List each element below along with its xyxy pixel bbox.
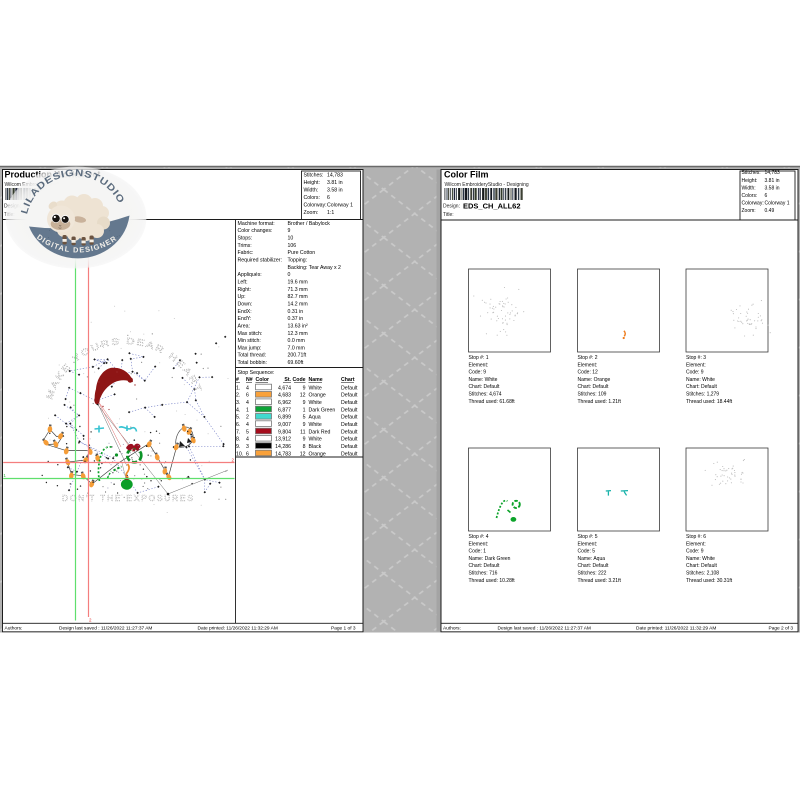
svg-text:Stitches: 222: Stitches: 222 [578,571,607,577]
svg-text:12: 12 [300,393,306,399]
svg-text:7.0 mm: 7.0 mm [288,345,305,351]
svg-text:Zoom:: Zoom: [742,208,756,214]
svg-text:Thread used: 61.68ft: Thread used: 61.68ft [469,399,516,405]
svg-text:Name: White: Name: White [686,556,715,562]
svg-text:EndY:: EndY: [238,316,252,322]
svg-text:Default: Default [341,429,358,435]
svg-text:Zoom:: Zoom: [304,210,319,216]
svg-text:Default: Default [341,400,358,406]
svg-text:Chart: Default: Chart: Default [578,563,609,569]
svg-text:3.58 in: 3.58 in [765,185,780,191]
svg-text:Code: 9: Code: 9 [469,370,487,376]
svg-text:Black: Black [309,444,322,450]
svg-text:Default: Default [341,437,358,443]
svg-text:Pure Cotton: Pure Cotton [288,250,316,256]
svg-text:Stitches: 109: Stitches: 109 [578,392,607,398]
svg-text:Thread used: 1.21ft: Thread used: 1.21ft [578,399,622,405]
svg-text:71.3 mm: 71.3 mm [288,287,308,293]
svg-text:3.: 3. [236,400,240,406]
svg-text:Topping:: Topping: [288,257,308,263]
svg-text:4: 4 [246,400,249,406]
svg-text:Wilcom EmbroideryStudio - Desi: Wilcom EmbroideryStudio - Designing [445,182,529,188]
svg-text:Brother / Babylock: Brother / Babylock [288,221,331,227]
svg-text:Down:: Down: [238,301,253,307]
svg-text:6,877: 6,877 [278,407,291,413]
svg-text:Area:: Area: [238,323,250,329]
svg-text:EndX:: EndX: [238,309,252,315]
svg-text:5.: 5. [236,415,240,421]
svg-text:6,962: 6,962 [278,400,291,406]
svg-text:Element:: Element: [686,362,706,368]
svg-text:Right:: Right: [238,287,252,293]
svg-text:Design last saved : 11/26/202: Design last saved : 11/26/2022 11:27:37 … [59,625,152,631]
svg-text:Dark Green: Dark Green [309,407,336,413]
svg-text:Design last saved : 11/26/202: Design last saved : 11/26/2022 11:27:37 … [498,625,591,631]
svg-text:Colors:: Colors: [304,195,320,201]
svg-text:2.: 2. [236,393,240,399]
svg-text:3.81 in: 3.81 in [327,180,343,186]
svg-text:1:1: 1:1 [327,210,334,216]
svg-text:Trims:: Trims: [238,243,252,249]
svg-text:1: 1 [246,407,249,413]
svg-text:Stitches:: Stitches: [304,173,324,179]
svg-text:Stitches: 716: Stitches: 716 [469,571,498,577]
svg-text:Default: Default [341,451,358,457]
svg-text:Color Film: Color Film [444,170,489,180]
svg-text:Height:: Height: [742,178,758,184]
svg-text:19.6 mm: 19.6 mm [288,279,308,285]
svg-text:9,007: 9,007 [278,422,291,428]
svg-text:4,683: 4,683 [278,393,291,399]
svg-text:Width:: Width: [742,185,756,191]
svg-text:Colorway 1: Colorway 1 [327,203,353,209]
svg-text:1.: 1. [236,385,240,391]
svg-text:Total bobbin:: Total bobbin: [238,360,267,366]
svg-text:Element:: Element: [578,541,598,547]
svg-text:69.60ft: 69.60ft [288,360,304,366]
svg-text:Default: Default [341,385,358,391]
svg-text:14,783: 14,783 [327,173,343,179]
svg-text:0.0 mm: 0.0 mm [288,338,305,344]
svg-text:Orange: Orange [309,393,326,399]
svg-text:5: 5 [303,415,306,421]
svg-text:1: 1 [303,407,306,413]
svg-text:10.: 10. [236,451,243,457]
svg-text:Name: Orange: Name: Orange [578,377,611,383]
svg-text:200.71ft: 200.71ft [288,353,307,359]
svg-text:Page 1 of 3: Page 1 of 3 [331,625,356,631]
svg-text:13.63 in²: 13.63 in² [288,323,308,329]
svg-text:Stop #: 5: Stop #: 5 [578,534,598,540]
svg-text:5: 5 [246,429,249,435]
svg-text:White: White [309,422,322,428]
svg-text:6: 6 [765,193,768,199]
svg-text:Orange: Orange [309,451,326,457]
svg-text:Element:: Element: [578,362,598,368]
svg-text:Thread used: 10.28ft: Thread used: 10.28ft [469,578,516,584]
svg-text:Page 2 of 3: Page 2 of 3 [769,625,794,631]
svg-text:12.3 mm: 12.3 mm [288,331,308,337]
svg-text:4: 4 [246,422,249,428]
svg-text:14,783: 14,783 [275,451,291,457]
svg-text:Element:: Element: [469,362,489,368]
svg-text:Thread used: 3.21ft: Thread used: 3.21ft [578,578,622,584]
svg-text:Min stitch:: Min stitch: [238,338,261,344]
svg-text:Authors:: Authors: [443,625,461,631]
svg-text:6.: 6. [236,422,240,428]
svg-text:Dark Red: Dark Red [309,429,331,435]
svg-text:Date printed: 11/26/2022 11:3: Date printed: 11/26/2022 11:32:29 AM [198,625,278,631]
svg-text:9: 9 [303,385,306,391]
svg-text:6: 6 [246,393,249,399]
svg-text:Stop #: 3: Stop #: 3 [686,355,706,361]
svg-text:Thread used: 18.44ft: Thread used: 18.44ft [686,399,733,405]
svg-text:Chart: Default: Chart: Default [686,563,717,569]
svg-text:106: 106 [288,243,297,249]
svg-text:3: 3 [246,444,249,450]
svg-text:White: White [309,400,322,406]
svg-text:Chart: Default: Chart: Default [686,384,717,390]
svg-text:Stop #: 6: Stop #: 6 [686,534,706,540]
svg-text:Default: Default [341,415,358,421]
svg-text:9.: 9. [236,444,240,450]
svg-text:DON'T THE EXPOSURES: DON'T THE EXPOSURES [62,493,195,503]
svg-text:Required stabilizer:: Required stabilizer: [238,257,282,263]
svg-text:9,804: 9,804 [278,429,291,435]
svg-text:Name: White: Name: White [686,377,715,383]
svg-text:Chart: Default: Chart: Default [469,563,500,569]
svg-text:Stop #: 2: Stop #: 2 [578,355,598,361]
svg-text:Code: 1: Code: 1 [469,549,487,555]
svg-text:Chart: Default: Chart: Default [578,384,609,390]
svg-text:Default: Default [341,444,358,450]
svg-text:8: 8 [303,444,306,450]
svg-text:Width:: Width: [304,188,319,194]
svg-text:Design:: Design: [443,204,460,210]
svg-text:3.58 in: 3.58 in [327,188,343,194]
svg-text:Fabric:: Fabric: [238,250,254,256]
svg-text:Default: Default [341,407,358,413]
svg-text:Aqua: Aqua [309,415,321,421]
svg-text:Title:: Title: [443,212,454,218]
svg-text:Chart: Default: Chart: Default [469,384,500,390]
svg-text:Code: 9: Code: 9 [686,549,704,555]
svg-text:Stops:: Stops: [238,235,253,241]
svg-text:3.81 in: 3.81 in [765,178,780,184]
svg-text:Colors:: Colors: [742,193,758,199]
svg-text:Max stitch:: Max stitch: [238,331,263,337]
svg-text:Date printed: 11/26/2022 11:3: Date printed: 11/26/2022 11:32:29 AM [636,625,716,631]
svg-text:Name: White: Name: White [469,377,498,383]
svg-text:Code: 12: Code: 12 [578,370,599,376]
svg-text:Stitches: 4,674: Stitches: 4,674 [469,392,502,398]
svg-text:White: White [309,385,322,391]
svg-text:0.37 in: 0.37 in [288,316,304,322]
svg-text:Stitches:: Stitches: [742,170,761,176]
svg-text:14,783: 14,783 [765,170,781,176]
svg-text:14.2 mm: 14.2 mm [288,301,308,307]
svg-text:13,912: 13,912 [275,437,291,443]
svg-text:Backing: Tear Away x 2: Backing: Tear Away x 2 [288,265,342,271]
svg-text:Machine format:: Machine format: [238,221,275,227]
svg-text:Stitches: 2,108: Stitches: 2,108 [686,571,719,577]
svg-text:Thread used: 30.31ft: Thread used: 30.31ft [686,578,733,584]
svg-text:Stop #: 4: Stop #: 4 [469,534,489,540]
svg-text:Element:: Element: [469,541,489,547]
svg-text:Appliqués:: Appliqués: [238,272,262,278]
svg-text:Default: Default [341,393,358,399]
svg-text:EDS_CH_ALL62: EDS_CH_ALL62 [463,202,521,211]
svg-text:Stop #: 1: Stop #: 1 [469,355,489,361]
svg-text:11: 11 [300,429,305,435]
svg-text:Max jump:: Max jump: [238,345,262,351]
svg-text:2: 2 [246,415,249,421]
svg-text:0: 0 [288,272,291,278]
svg-text:82.7 mm: 82.7 mm [288,294,308,300]
svg-text:9: 9 [303,437,306,443]
svg-text:6,899: 6,899 [278,415,291,421]
svg-text:Height:: Height: [304,180,320,186]
svg-text:4: 4 [246,437,249,443]
svg-text:4: 4 [246,385,249,391]
svg-text:Total thread:: Total thread: [238,353,267,359]
svg-text:4,674: 4,674 [278,385,291,391]
svg-text:Stop Sequence:: Stop Sequence: [238,370,275,376]
svg-text:Element:: Element: [686,541,706,547]
svg-text:6: 6 [327,195,330,201]
svg-text:Colorway:: Colorway: [304,203,327,209]
svg-text:Colorway:: Colorway: [742,201,764,207]
svg-text:White: White [309,437,322,443]
svg-text:0.49: 0.49 [765,208,775,214]
svg-text:8.: 8. [236,437,240,443]
svg-text:9: 9 [288,228,291,234]
svg-text:9: 9 [303,422,306,428]
svg-text:Authors:: Authors: [5,625,23,631]
svg-text:12: 12 [300,451,306,457]
svg-text:Code: 9: Code: 9 [686,370,704,376]
svg-text:9: 9 [303,400,306,406]
svg-text:Up:: Up: [238,294,246,300]
svg-text:4.: 4. [236,407,240,413]
svg-text:6: 6 [246,451,249,457]
svg-text:Name: Aqua: Name: Aqua [578,556,606,562]
svg-text:7.: 7. [236,429,240,435]
svg-text:Colorway 1: Colorway 1 [765,201,790,207]
svg-text:Left:: Left: [238,279,248,285]
svg-text:0.31 in: 0.31 in [288,309,304,315]
svg-text:Name: Dark Green: Name: Dark Green [469,556,511,562]
svg-text:Color changes:: Color changes: [238,228,273,234]
svg-text:10: 10 [288,235,294,241]
svg-text:14,286: 14,286 [275,444,291,450]
svg-text:Code: 5: Code: 5 [578,549,596,555]
svg-text:Stitches: 1,279: Stitches: 1,279 [686,392,719,398]
svg-text:Default: Default [341,422,358,428]
